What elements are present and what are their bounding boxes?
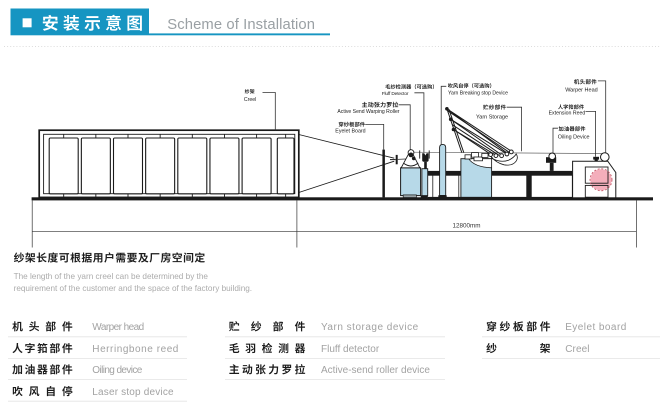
svg-text:Eyelet board: Eyelet board <box>565 322 627 333</box>
svg-text:Fluff detector: Fluff detector <box>321 344 380 355</box>
svg-text:Creel: Creel <box>565 344 589 355</box>
svg-text:Warper Head: Warper Head <box>565 88 598 94</box>
svg-text:12800mm: 12800mm <box>452 222 480 229</box>
svg-text:Fluff Detector: Fluff Detector <box>382 91 409 97</box>
svg-text:Eyelet Board: Eyelet Board <box>335 129 365 135</box>
svg-text:Yarn storage device: Yarn storage device <box>321 322 419 333</box>
svg-text:Oiling Device: Oiling Device <box>558 134 590 140</box>
svg-text:requirement of the customer an: requirement of the customer and the spac… <box>14 284 253 293</box>
svg-text:Creel: Creel <box>244 97 256 103</box>
svg-text:Scheme of Installation: Scheme of Installation <box>167 17 315 33</box>
svg-text:Laser stop device: Laser stop device <box>92 387 174 398</box>
svg-text:Herringbone reed: Herringbone reed <box>92 344 179 355</box>
svg-text:Yarn Storage: Yarn Storage <box>476 114 508 120</box>
svg-text:Active Send Warping Roller: Active Send Warping Roller <box>337 109 399 115</box>
svg-text:Oiling device: Oiling device <box>92 365 142 376</box>
svg-text:Warper head: Warper head <box>92 322 143 333</box>
svg-text:Active-send roller device: Active-send roller device <box>321 365 430 376</box>
svg-text:Extension Reed: Extension Reed <box>549 111 586 117</box>
svg-text:The length of the yarn creel c: The length of the yarn creel can be dete… <box>14 272 209 281</box>
svg-text:Yarn Breaking stop Device: Yarn Breaking stop Device <box>448 90 508 96</box>
